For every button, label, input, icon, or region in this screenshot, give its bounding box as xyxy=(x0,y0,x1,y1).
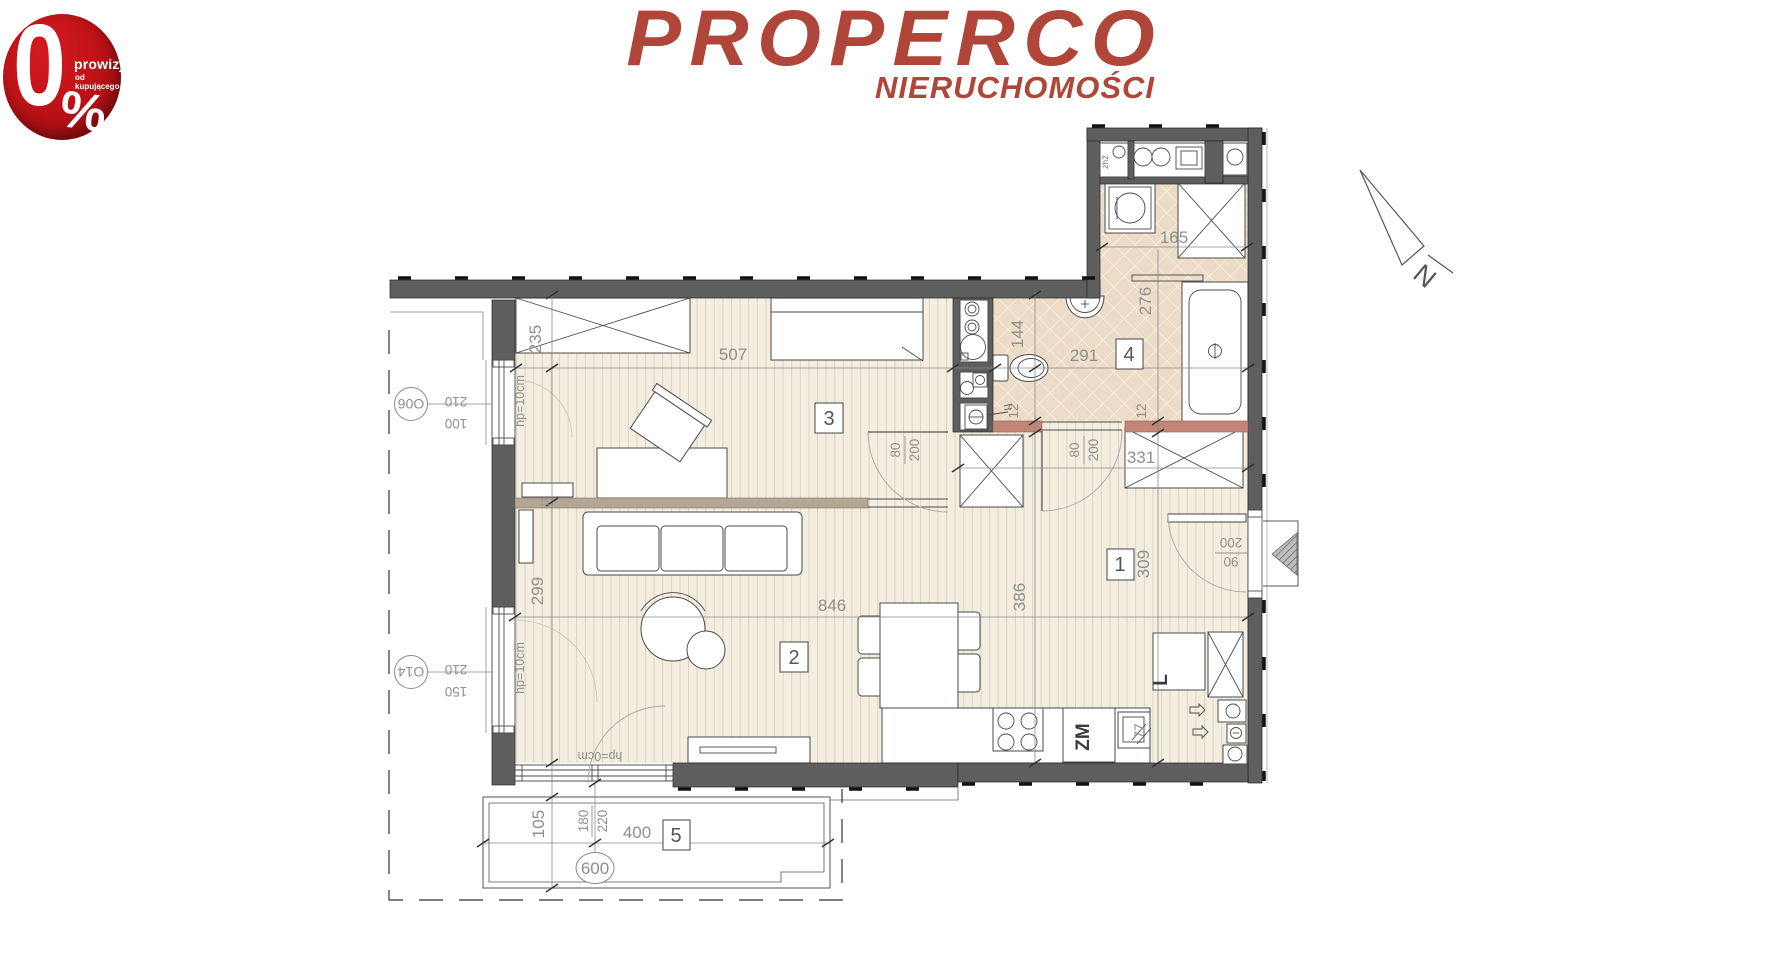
window1-sill: 100 xyxy=(445,416,468,431)
door-entrance-width: 90 xyxy=(1223,554,1238,569)
dim-165: 165 xyxy=(1160,228,1188,247)
balcony-600-label: 600 xyxy=(581,859,609,878)
door-entrance-height: 200 xyxy=(1220,535,1243,550)
tv-cabinet xyxy=(688,737,810,763)
room-5-label: 5 xyxy=(670,825,681,847)
window2-sill: 150 xyxy=(445,684,468,699)
desk xyxy=(597,448,727,498)
kitchen-sink-label: ZM xyxy=(1073,723,1094,750)
window1-hp: hp=10cm xyxy=(513,375,527,427)
room-2-label: 2 xyxy=(788,647,799,669)
floor-plan-drawing: 235 507 299 846 105 400 386 309 331 144 … xyxy=(0,0,1776,970)
sofa xyxy=(583,512,802,575)
entrance-marker xyxy=(1263,521,1298,586)
window-O14 xyxy=(492,607,515,733)
window2-width: 210 xyxy=(445,662,468,677)
dim-400: 400 xyxy=(623,823,651,842)
dim-144: 144 xyxy=(1008,320,1027,348)
entrance-triangle-icon xyxy=(1272,533,1297,575)
shelf-room3 xyxy=(522,483,573,497)
brand-name: PROPERCO xyxy=(0,0,1163,76)
door-room3-width: 80 xyxy=(888,442,903,457)
dim-12-right: 12 xyxy=(1134,403,1149,418)
fridge-label: L xyxy=(1151,674,1172,686)
partition-wall xyxy=(515,498,868,508)
dim-11: 11 xyxy=(540,497,549,507)
balcony-door xyxy=(515,765,673,781)
window-O06 xyxy=(492,360,515,445)
wardrobe-kitchen xyxy=(1208,632,1243,697)
door-bath-width: 80 xyxy=(1067,442,1082,457)
door-leaf-entrance xyxy=(1168,514,1246,522)
door-room3-height: 200 xyxy=(907,439,922,462)
wardrobe-hall-1 xyxy=(960,435,1023,507)
brand-logo: PROPERCO NIERUCHOMOŚCI xyxy=(0,0,1163,106)
window2-hp: hp=10cm xyxy=(513,642,527,694)
dim-12-left: 12 xyxy=(1006,403,1021,418)
dim-507: 507 xyxy=(719,345,747,364)
window2-code: O14 xyxy=(398,664,425,680)
dim-309: 309 xyxy=(1134,550,1153,578)
floor-plan-page: 235 507 299 846 105 400 386 309 331 144 … xyxy=(0,0,1776,970)
radiator xyxy=(519,510,533,563)
north-arrow-icon: N xyxy=(1360,170,1453,294)
dim-105: 105 xyxy=(529,810,548,838)
dim-386: 386 xyxy=(1010,583,1029,611)
dim-299: 299 xyxy=(528,577,547,605)
window1-code: O06 xyxy=(398,396,425,412)
door-bath-height: 200 xyxy=(1086,439,1101,462)
window1-width: 210 xyxy=(445,394,468,409)
bed xyxy=(771,298,923,361)
lintel-right xyxy=(1125,421,1248,432)
dim-77: 77 xyxy=(1132,723,1147,738)
room-1-label: 1 xyxy=(1114,554,1125,576)
dim-276: 276 xyxy=(1136,287,1155,315)
dining-table xyxy=(880,603,958,708)
bathtub xyxy=(1182,282,1248,422)
balcony-hp: hp=0cm xyxy=(578,749,623,763)
dim-291: 291 xyxy=(1070,346,1098,365)
balcony-door-height: 220 xyxy=(595,810,610,833)
balcony-door-width: 180 xyxy=(576,810,591,833)
dim-235: 235 xyxy=(526,325,545,353)
shaft-label: zh2 xyxy=(1100,155,1110,169)
dim-331: 331 xyxy=(1127,448,1155,467)
stove xyxy=(993,708,1043,751)
dim-846: 846 xyxy=(818,596,846,615)
top-service-niches xyxy=(1100,143,1247,177)
entrance-opening xyxy=(1248,510,1262,598)
room-3-label: 3 xyxy=(823,408,834,430)
exterior-ledge-line xyxy=(390,312,483,360)
washing-machine xyxy=(1105,183,1155,233)
north-label: N xyxy=(1408,258,1442,294)
room-4-label: 4 xyxy=(1123,344,1134,366)
